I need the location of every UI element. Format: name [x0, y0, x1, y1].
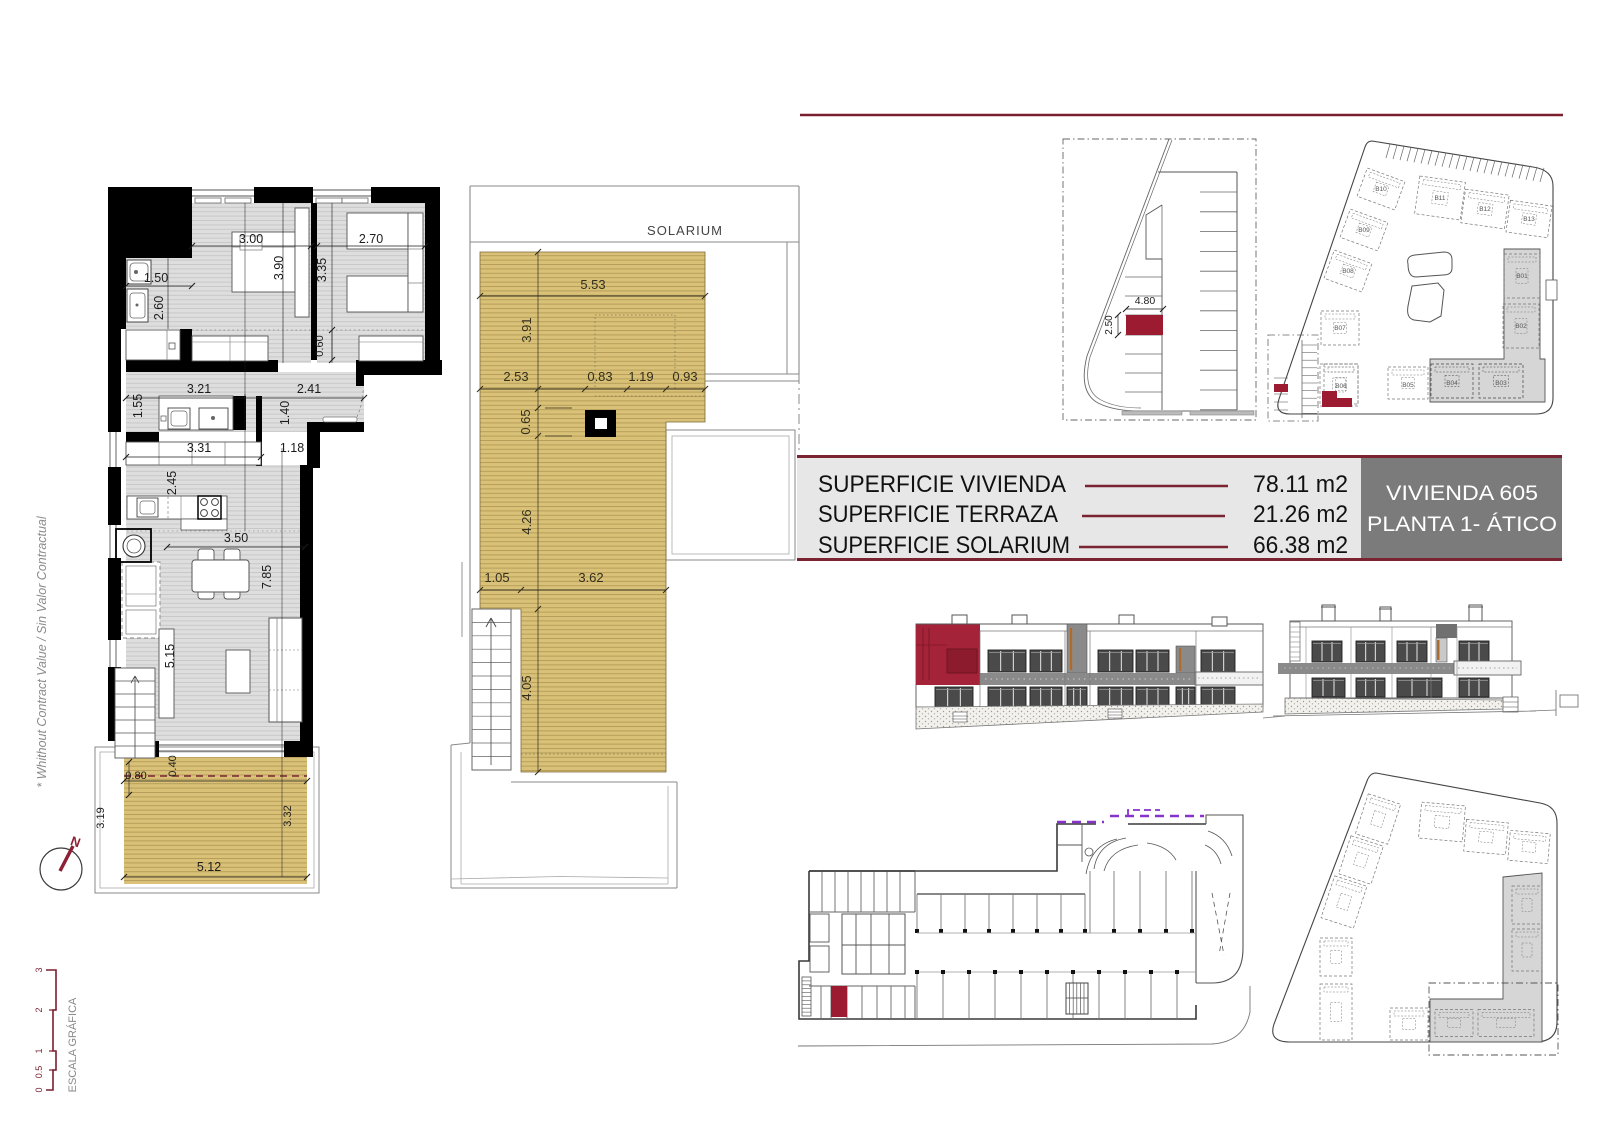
- svg-text:66.38 m2: 66.38 m2: [1253, 532, 1348, 559]
- svg-text:2.45: 2.45: [165, 471, 179, 495]
- svg-text:2.53: 2.53: [503, 369, 528, 384]
- svg-text:3.21: 3.21: [187, 382, 211, 396]
- svg-text:VIVIENDA 605: VIVIENDA 605: [1386, 482, 1538, 505]
- svg-text:3.62: 3.62: [578, 570, 603, 585]
- svg-text:78.11 m2: 78.11 m2: [1253, 471, 1348, 498]
- svg-text:3.90: 3.90: [272, 256, 286, 280]
- svg-text:3: 3: [34, 967, 44, 972]
- svg-text:2.41: 2.41: [297, 382, 321, 396]
- svg-text:0: 0: [34, 1087, 44, 1092]
- svg-text:4.26: 4.26: [519, 509, 534, 534]
- svg-text:B11: B11: [1434, 195, 1445, 202]
- svg-text:B06: B06: [1335, 383, 1347, 390]
- svg-text:B13: B13: [1523, 216, 1535, 223]
- svg-text:0.93: 0.93: [672, 369, 697, 384]
- svg-text:3.50: 3.50: [224, 531, 248, 545]
- svg-text:ESCALA GRÁFICA: ESCALA GRÁFICA: [66, 997, 79, 1092]
- svg-text:1.19: 1.19: [628, 369, 653, 384]
- svg-text:1.18: 1.18: [280, 441, 304, 455]
- svg-text:B04: B04: [1446, 380, 1458, 387]
- svg-text:0.83: 0.83: [587, 369, 612, 384]
- svg-text:B09: B09: [1358, 227, 1370, 234]
- svg-text:0.5: 0.5: [34, 1066, 44, 1079]
- svg-text:SUPERFICIE VIVIENDA: SUPERFICIE VIVIENDA: [818, 471, 1066, 498]
- svg-text:5.53: 5.53: [580, 277, 605, 292]
- svg-text:3.31: 3.31: [187, 441, 211, 455]
- svg-text:1.55: 1.55: [131, 394, 145, 418]
- svg-text:* Whithout Contract Value / S: * Whithout Contract Value / Sin Valor Co…: [35, 515, 49, 788]
- svg-text:0.65: 0.65: [518, 409, 533, 434]
- svg-text:1.05: 1.05: [484, 570, 509, 585]
- svg-text:3.00: 3.00: [239, 232, 263, 246]
- svg-text:1.50: 1.50: [144, 271, 168, 285]
- svg-text:1: 1: [34, 1048, 44, 1053]
- svg-text:2.50: 2.50: [1104, 315, 1115, 335]
- svg-text:B08: B08: [1342, 268, 1354, 275]
- svg-text:2.70: 2.70: [359, 232, 383, 246]
- svg-text:3.91: 3.91: [519, 317, 534, 342]
- svg-text:B07: B07: [1334, 325, 1346, 332]
- svg-text:21.26 m2: 21.26 m2: [1253, 501, 1348, 528]
- svg-text:2.60: 2.60: [152, 296, 166, 320]
- svg-text:3.32: 3.32: [282, 805, 294, 826]
- svg-text:SOLARIUM: SOLARIUM: [647, 223, 723, 238]
- svg-text:B12: B12: [1479, 206, 1491, 213]
- svg-text:0.80: 0.80: [125, 770, 146, 782]
- svg-text:B05: B05: [1402, 382, 1414, 389]
- svg-text:SUPERFICIE SOLARIUM: SUPERFICIE SOLARIUM: [818, 532, 1070, 559]
- svg-text:4.05: 4.05: [519, 675, 534, 700]
- svg-text:7.85: 7.85: [260, 565, 274, 589]
- svg-text:3.19: 3.19: [95, 807, 107, 828]
- svg-text:B02: B02: [1515, 323, 1527, 330]
- svg-text:5.12: 5.12: [197, 860, 221, 874]
- svg-text:0.40: 0.40: [167, 755, 179, 776]
- svg-text:B10: B10: [1375, 186, 1387, 193]
- svg-text:5.15: 5.15: [163, 644, 177, 668]
- svg-text:PLANTA 1- ÁTICO: PLANTA 1- ÁTICO: [1367, 513, 1557, 536]
- svg-text:SUPERFICIE TERRAZA: SUPERFICIE TERRAZA: [818, 501, 1058, 528]
- svg-text:B03: B03: [1495, 380, 1507, 387]
- svg-text:3.35: 3.35: [315, 258, 329, 282]
- svg-text:2: 2: [34, 1007, 44, 1012]
- svg-text:1.40: 1.40: [278, 401, 292, 425]
- svg-text:0.60: 0.60: [314, 335, 326, 356]
- svg-text:B01: B01: [1516, 273, 1528, 280]
- svg-text:4.80: 4.80: [1135, 295, 1156, 307]
